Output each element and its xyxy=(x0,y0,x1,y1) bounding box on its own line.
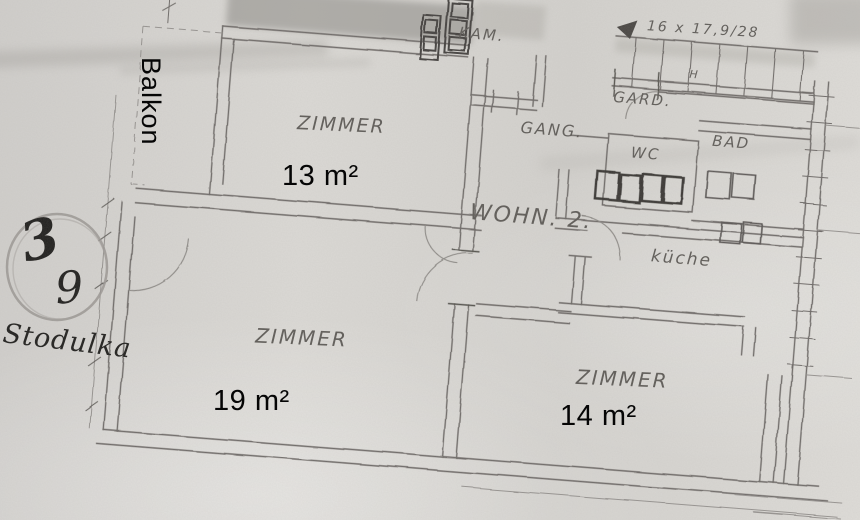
floor-plan-drawing: ZIMMER ZIMMER ZIMMER KAM. GANG. GARD. WC… xyxy=(0,0,860,520)
overlay-size-13: 13 m² xyxy=(282,160,359,193)
overlay-label-balkon: Balkon xyxy=(135,57,166,146)
overlay-size-19: 19 m² xyxy=(213,385,290,418)
scanned-floor-plan-page: ZIMMER ZIMMER ZIMMER KAM. GANG. GARD. WC… xyxy=(0,0,860,520)
paper-grain xyxy=(0,0,860,520)
overlay-size-14: 14 m² xyxy=(560,400,637,433)
